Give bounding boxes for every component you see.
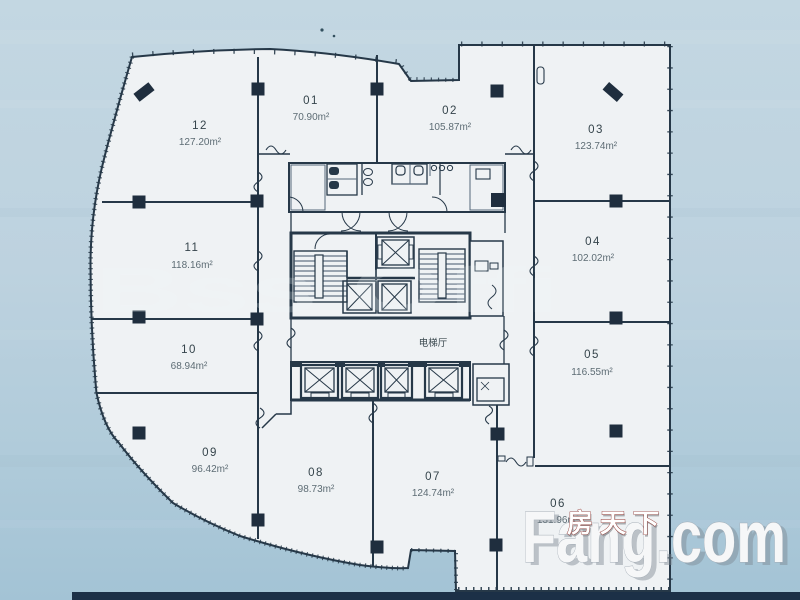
svg-text:10: 10	[181, 344, 197, 356]
svg-text:116.55m²: 116.55m²	[571, 367, 613, 378]
svg-text:123.74m²: 123.74m²	[575, 141, 618, 152]
svg-text:102.02m²: 102.02m²	[572, 253, 615, 264]
svg-text:127.20m²: 127.20m²	[179, 137, 222, 148]
svg-text:房天下: 房天下	[567, 508, 666, 538]
svg-text:98.73m²: 98.73m²	[298, 484, 335, 495]
svg-text:96.42m²: 96.42m²	[192, 464, 229, 475]
svg-text:12: 12	[192, 120, 208, 132]
svg-text:70.90m²: 70.90m²	[293, 112, 330, 123]
svg-text:电梯厅: 电梯厅	[419, 337, 448, 349]
svg-text:04: 04	[585, 236, 601, 248]
svg-text:Bss Offi: Bss Offi	[95, 254, 560, 326]
svg-text:124.74m²: 124.74m²	[412, 488, 455, 499]
svg-text:02: 02	[442, 105, 458, 117]
svg-text:105.87m²: 105.87m²	[429, 122, 472, 133]
svg-text:03: 03	[588, 124, 604, 136]
svg-text:08: 08	[308, 467, 324, 479]
svg-text:01: 01	[303, 95, 319, 107]
svg-text:07: 07	[425, 471, 441, 483]
svg-text:05: 05	[584, 349, 600, 361]
svg-text:68.94m²: 68.94m²	[171, 361, 208, 372]
svg-text:09: 09	[202, 447, 218, 459]
svg-text:11: 11	[185, 242, 200, 254]
